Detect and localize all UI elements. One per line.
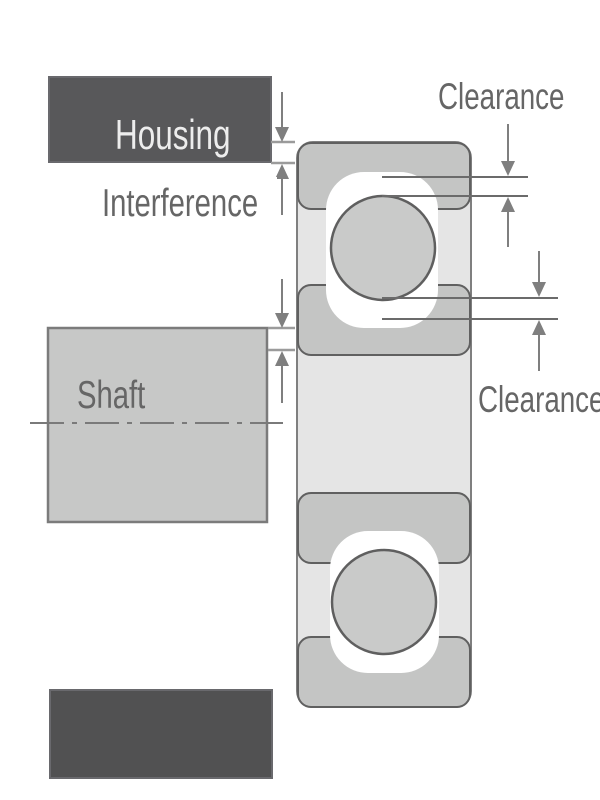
clearance-bottom-label: Clearance [478, 381, 600, 418]
shaft-interference-arrowhead-down [275, 313, 289, 328]
shaft-interference-arrowhead-up [275, 351, 289, 366]
clearance-top-arrowhead-down [501, 161, 515, 176]
clearance-bottom-arrowhead-down [532, 282, 546, 297]
shaft-block [48, 328, 267, 522]
housing-interference-arrowhead-down [275, 127, 289, 142]
clearance-top-label: Clearance [438, 78, 564, 115]
housing-block-bottom [50, 690, 272, 778]
clearance-top-arrowhead-up [501, 197, 515, 212]
interference-label: Interference [102, 184, 258, 223]
bearing-fit-diagram: Housing Interference Shaft Clearance Cle… [0, 0, 600, 800]
shaft-label: Shaft [77, 376, 145, 415]
ball-bottom [332, 550, 436, 654]
clearance-bottom-arrowhead-up [532, 320, 546, 335]
housing-label: Housing [115, 114, 231, 156]
housing-interference-arrowhead-up [275, 164, 289, 179]
ball-top [331, 196, 435, 300]
